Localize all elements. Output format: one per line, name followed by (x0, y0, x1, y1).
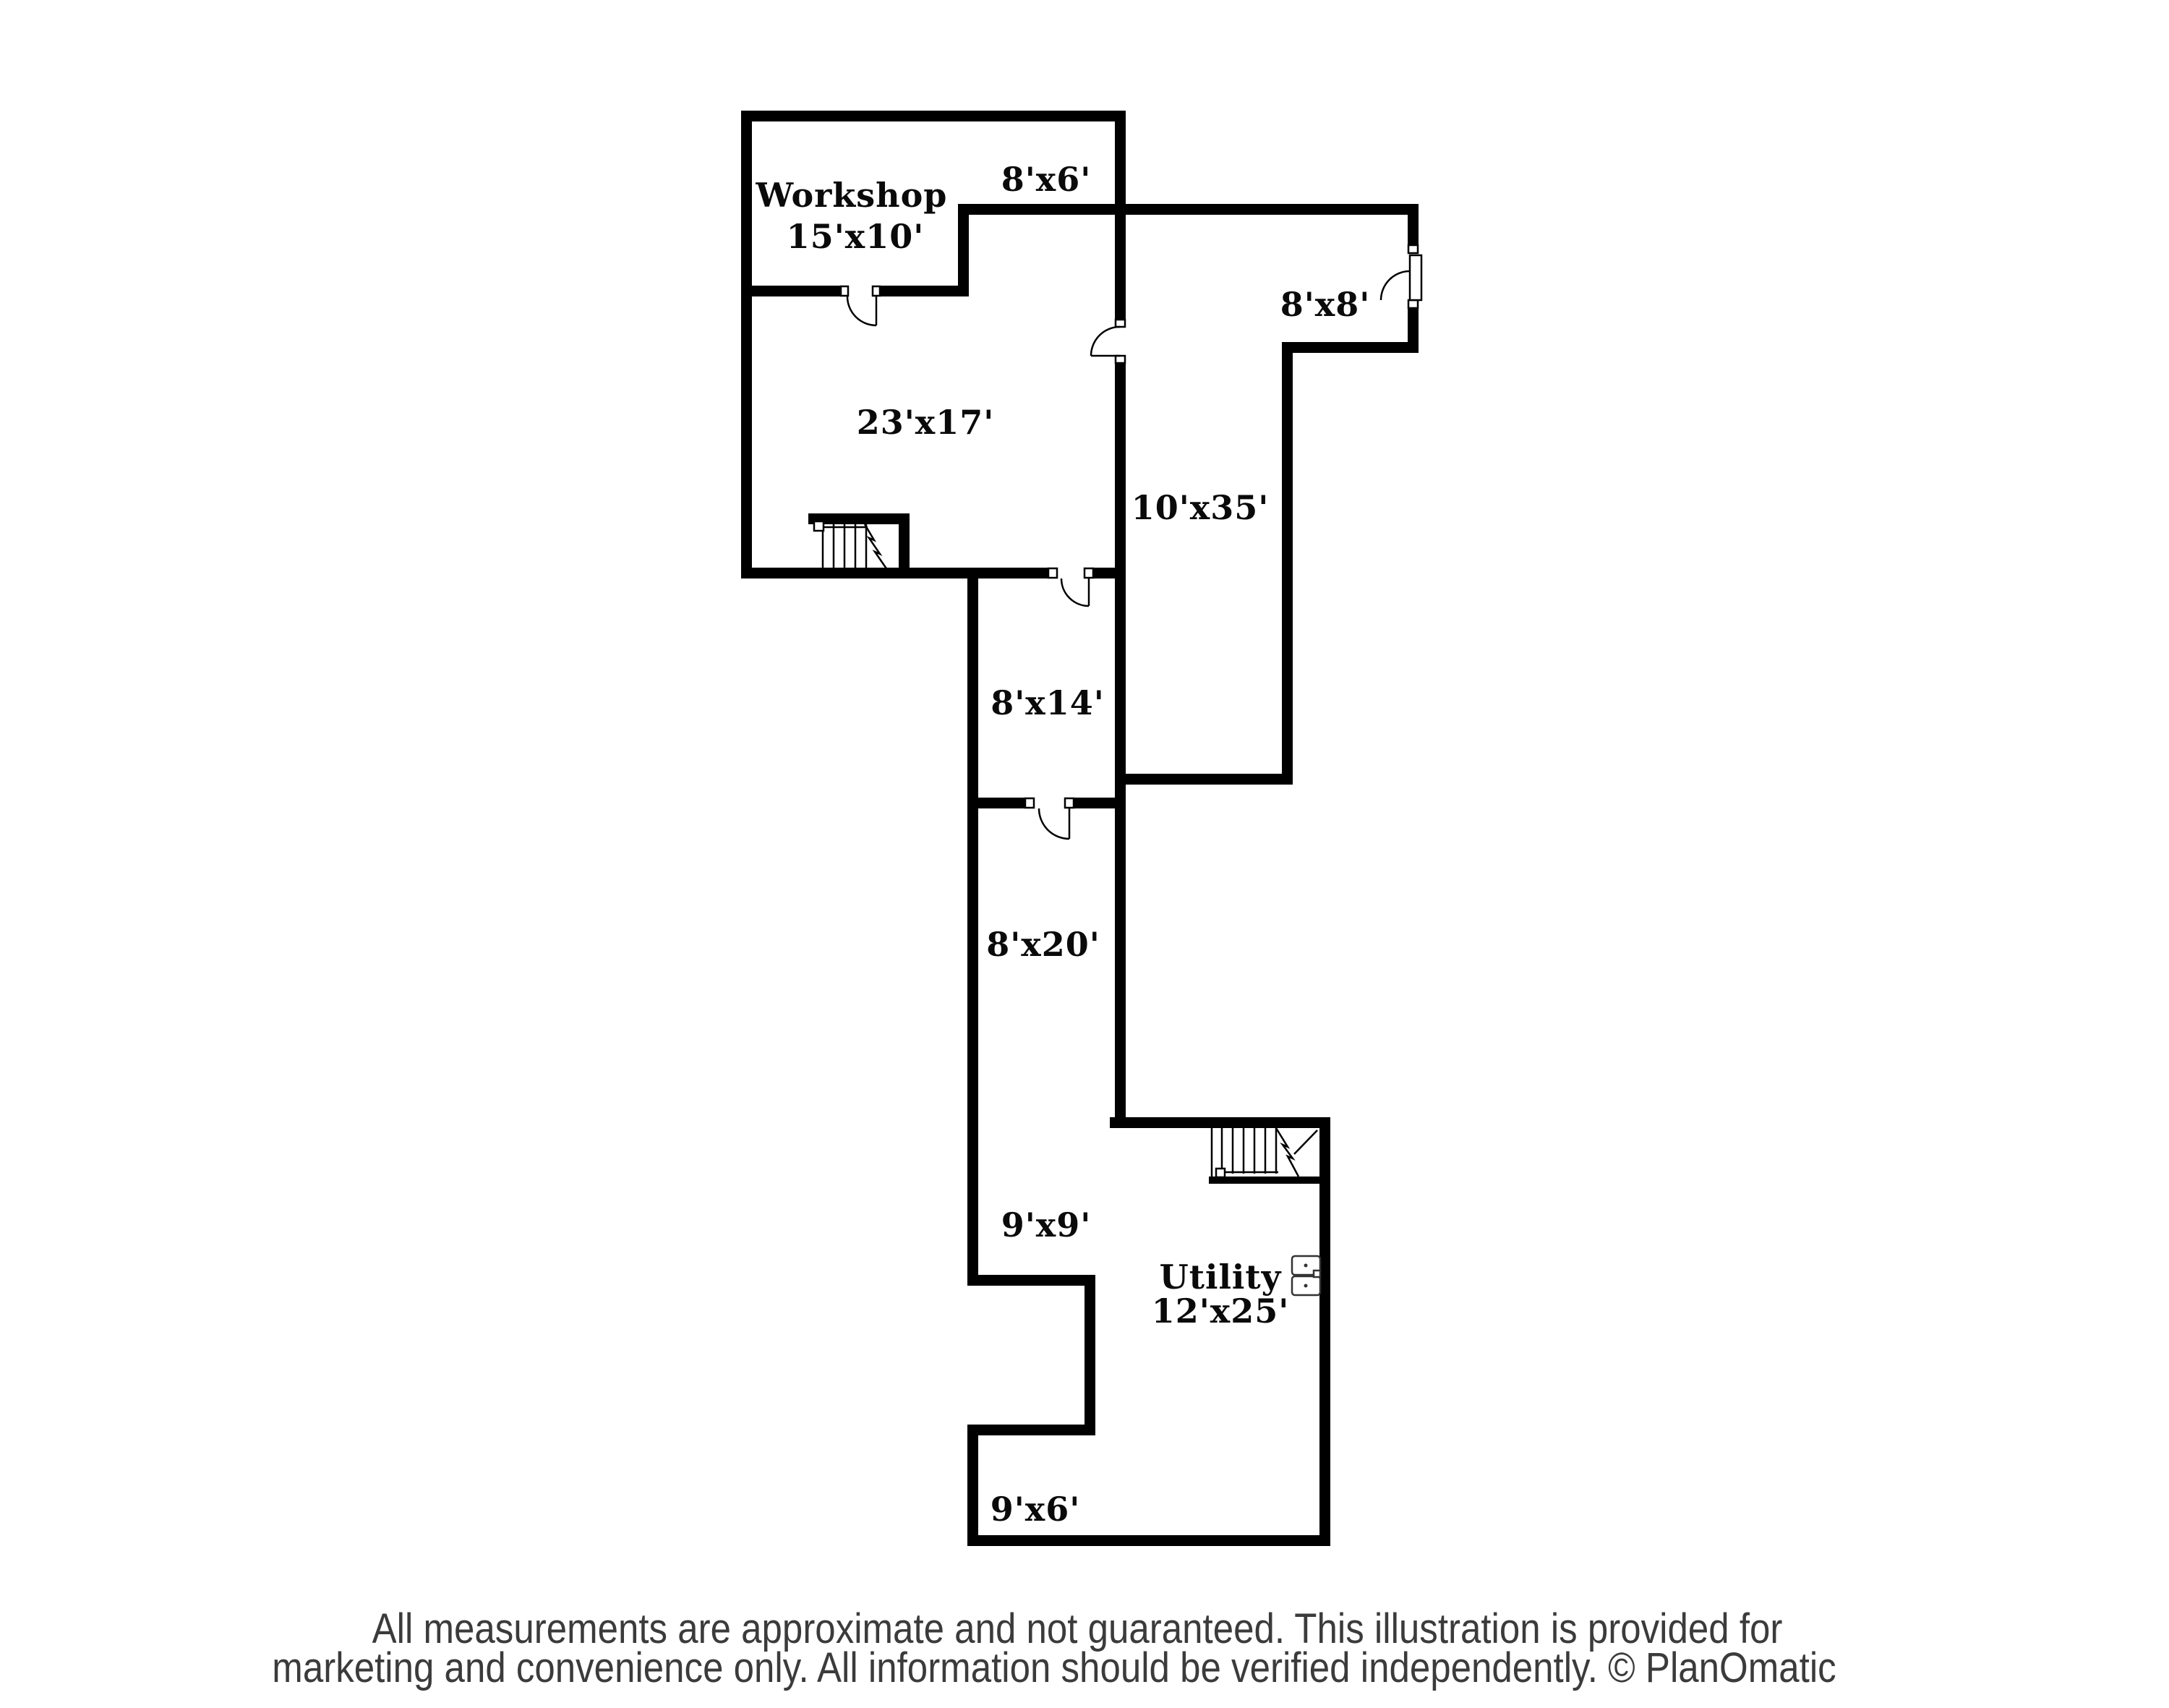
room-dims-workshop: 15'x10' (787, 217, 925, 256)
room-labels: Workshop 15'x10' 8'x6' 8'x8' 23'x17' 10'… (756, 160, 1371, 1529)
door-hall-23x17 (1091, 320, 1125, 363)
room-dims-8x8: 8'x8' (1280, 285, 1371, 324)
door-8x14-top (1048, 568, 1093, 606)
room-dims-8x20: 8'x20' (986, 925, 1100, 964)
room-dims-utility: 12'x25' (1152, 1291, 1290, 1331)
floor-plan-canvas: Workshop 15'x10' 8'x6' 8'x8' 23'x17' 10'… (0, 0, 2169, 1708)
door-exterior-8x8 (1381, 245, 1421, 308)
floor-plan: Workshop 15'x10' 8'x6' 8'x8' 23'x17' 10'… (0, 0, 2169, 1708)
double-sink-icon (1292, 1256, 1320, 1295)
footer-disclaimer: All measurements are approximate and not… (272, 1605, 1836, 1691)
staircase-icon-basement (814, 521, 889, 573)
room-dims-23x17: 23'x17' (857, 403, 995, 442)
room-dims-8x14: 8'x14' (991, 683, 1105, 722)
walls (741, 111, 1419, 1546)
room-dims-8x6: 8'x6' (1001, 160, 1092, 199)
footer-disclaimer-line2: marketing and convenience only. All info… (272, 1644, 1836, 1691)
room-label-workshop: Workshop (756, 176, 948, 215)
room-dims-10x35: 10'x35' (1131, 488, 1270, 527)
door-8x14-bottom (1025, 798, 1074, 839)
room-dims-9x6: 9'x6' (991, 1490, 1081, 1529)
door-workshop (841, 286, 880, 325)
staircase-icon-utility (1212, 1128, 1317, 1180)
room-dims-9x9: 9'x9' (1001, 1205, 1092, 1244)
room-label-utility: Utility (1160, 1257, 1282, 1297)
